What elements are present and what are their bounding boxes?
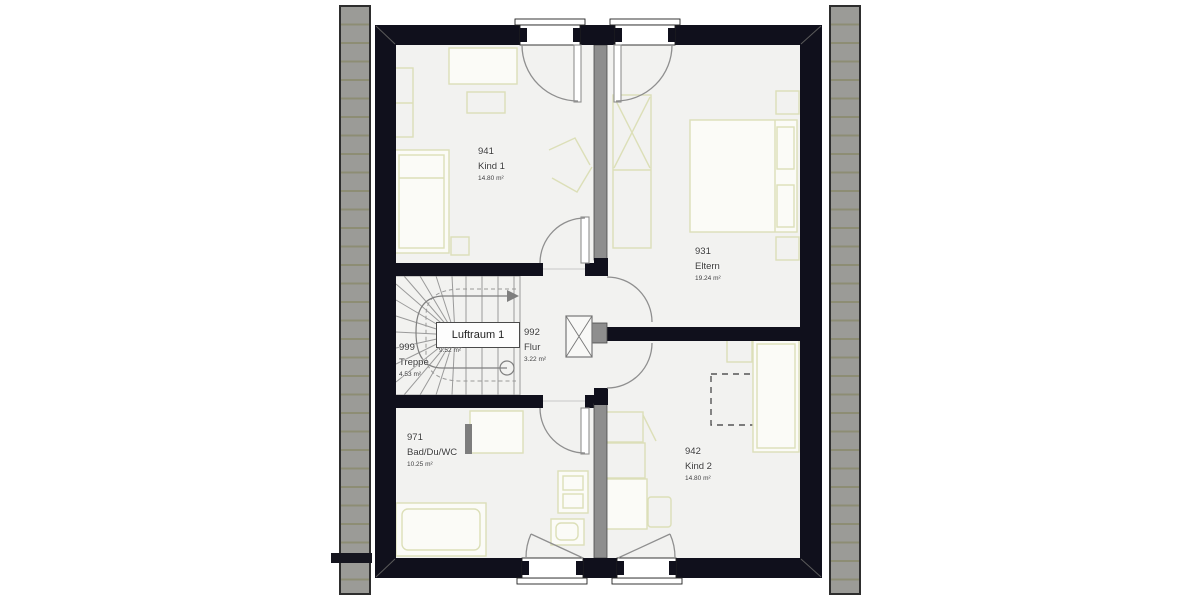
room-name: Kind 2 (685, 459, 712, 474)
bed (394, 150, 449, 253)
room-label-kind2: 942 Kind 2 14.80 m² (685, 444, 712, 483)
shower-divider (465, 424, 472, 454)
room-area: 3.22 m² (524, 355, 546, 364)
room-name: Eltern (695, 259, 721, 274)
room-label-kind1: 941 Kind 1 14.80 m² (478, 144, 505, 183)
void-area: 9.52 m² (439, 347, 461, 354)
room-name: Bad/Du/WC (407, 445, 457, 460)
floorplan-drawing (0, 0, 1200, 600)
room-label-bad: 971 Bad/Du/WC 10.25 m² (407, 430, 457, 469)
desk (605, 479, 647, 529)
door-leaf (581, 408, 589, 454)
room-name: Kind 1 (478, 159, 505, 174)
room-name: Treppe (399, 355, 429, 370)
bed (753, 340, 799, 452)
room-area: 14.80 m² (685, 474, 712, 483)
room-label-eltern: 931 Eltern 19.24 m² (695, 244, 721, 283)
room-name: Flur (524, 340, 546, 355)
shower (470, 411, 523, 453)
room-area: 19.24 m² (695, 274, 721, 283)
door-leaf (574, 45, 581, 102)
chimney-shaft (566, 316, 592, 357)
room-number: 942 (685, 444, 712, 459)
room-area: 14.80 m² (478, 174, 505, 183)
center-partition-wall (594, 45, 607, 260)
floorplan-canvas: 941 Kind 1 14.80 m² 931 Eltern 19.24 m² … (0, 0, 1200, 600)
door-leaf (581, 217, 589, 263)
room-number: 999 (399, 340, 429, 355)
double-bed (690, 120, 797, 232)
room-area: 10.25 m² (407, 460, 457, 469)
door-jamb-block (591, 323, 607, 343)
bathtub (396, 503, 486, 556)
room-label-treppe: 999 Treppe 4.53 m² (399, 340, 429, 379)
desk (449, 48, 517, 84)
room-number: 992 (524, 325, 546, 340)
room-number: 931 (695, 244, 721, 259)
room-area: 4.53 m² (399, 370, 429, 379)
room-label-flur: 992 Flur 3.22 m² (524, 325, 546, 364)
room-number: 941 (478, 144, 505, 159)
room-number: 971 (407, 430, 457, 445)
void-label-box: Luftraum 1 (436, 322, 520, 348)
door-leaf (614, 45, 621, 102)
